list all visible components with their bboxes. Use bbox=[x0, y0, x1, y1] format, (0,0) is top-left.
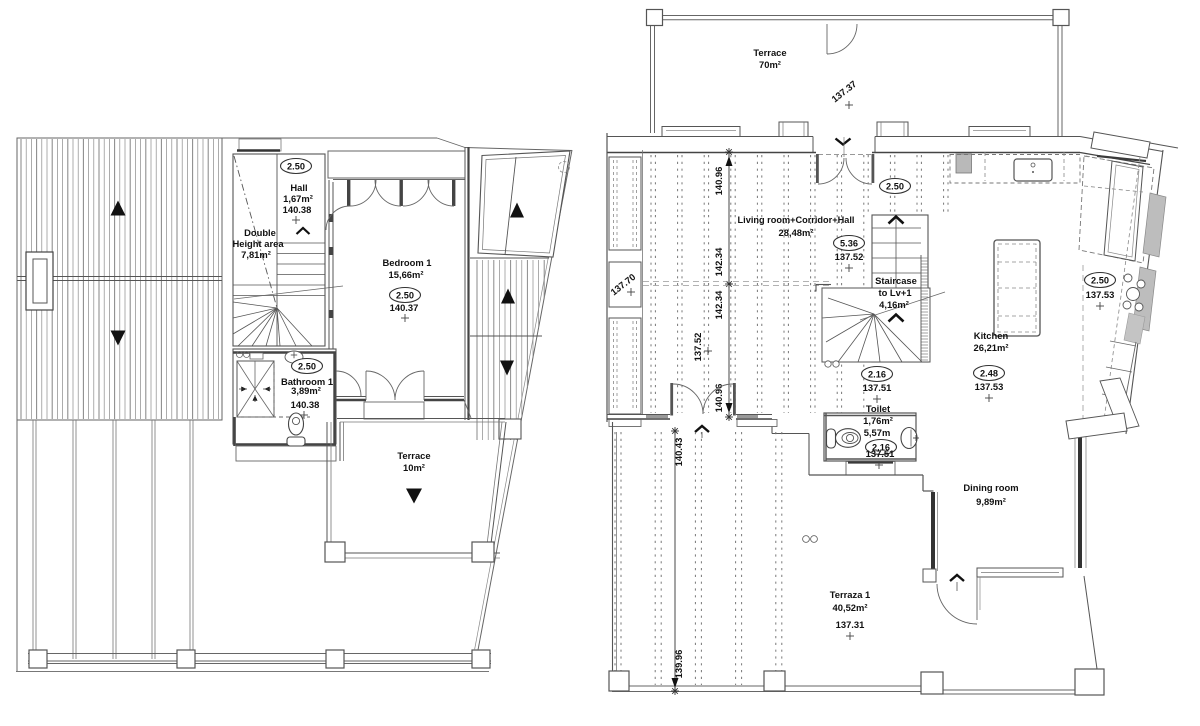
svg-text:40,52m²: 40,52m² bbox=[833, 602, 868, 613]
svg-text:15,66m²: 15,66m² bbox=[389, 269, 424, 280]
svg-text:2.50: 2.50 bbox=[886, 181, 904, 191]
svg-text:5.36: 5.36 bbox=[840, 238, 858, 248]
svg-text:9,89m²: 9,89m² bbox=[976, 496, 1006, 507]
svg-text:Dining room: Dining room bbox=[963, 482, 1018, 493]
svg-text:142.34: 142.34 bbox=[713, 290, 724, 319]
svg-text:Hall: Hall bbox=[290, 182, 307, 193]
svg-text:3,89m²: 3,89m² bbox=[291, 385, 321, 396]
svg-text:2.50: 2.50 bbox=[396, 290, 414, 300]
svg-text:Kitchen: Kitchen bbox=[974, 330, 1009, 341]
svg-text:137.52: 137.52 bbox=[835, 251, 864, 262]
svg-text:137.53: 137.53 bbox=[975, 381, 1004, 392]
svg-text:7,81m²: 7,81m² bbox=[241, 249, 271, 260]
svg-text:140.38: 140.38 bbox=[283, 204, 312, 215]
svg-text:Staircase: Staircase bbox=[875, 275, 917, 286]
svg-text:1,76m²: 1,76m² bbox=[863, 415, 893, 426]
svg-text:Terrace: Terrace bbox=[397, 450, 430, 461]
svg-text:Terraza 1: Terraza 1 bbox=[830, 589, 870, 600]
svg-text:Living room+Corridor+Hall: Living room+Corridor+Hall bbox=[738, 215, 855, 225]
svg-text:140.43: 140.43 bbox=[673, 438, 684, 467]
svg-text:to Lv+1: to Lv+1 bbox=[878, 287, 911, 298]
svg-text:Bedroom 1: Bedroom 1 bbox=[383, 257, 432, 268]
svg-text:140.38: 140.38 bbox=[291, 399, 320, 410]
svg-text:142.34: 142.34 bbox=[713, 247, 724, 276]
svg-text:10m²: 10m² bbox=[403, 462, 425, 473]
svg-text:137.52: 137.52 bbox=[692, 333, 703, 362]
svg-text:2.50: 2.50 bbox=[1091, 275, 1109, 285]
svg-text:Terrace: Terrace bbox=[753, 47, 786, 58]
svg-text:139.96: 139.96 bbox=[673, 650, 684, 679]
svg-text:137.51: 137.51 bbox=[863, 382, 892, 393]
svg-text:1,67m²: 1,67m² bbox=[283, 193, 313, 204]
svg-text:Toilet: Toilet bbox=[866, 403, 890, 414]
svg-text:140.37: 140.37 bbox=[390, 302, 419, 313]
svg-text:5,57m: 5,57m bbox=[864, 427, 891, 438]
svg-text:2.48: 2.48 bbox=[980, 368, 998, 378]
svg-text:137.31: 137.31 bbox=[836, 619, 865, 630]
svg-text:70m²: 70m² bbox=[759, 59, 781, 70]
svg-text:137.53: 137.53 bbox=[1086, 289, 1115, 300]
svg-text:140.96: 140.96 bbox=[713, 167, 724, 196]
svg-text:137.51: 137.51 bbox=[866, 448, 895, 459]
svg-text:Height area: Height area bbox=[232, 238, 284, 249]
svg-text:26,21m²: 26,21m² bbox=[974, 342, 1009, 353]
svg-text:4,16m²: 4,16m² bbox=[879, 299, 909, 310]
svg-text:2.50: 2.50 bbox=[298, 361, 316, 371]
svg-text:2.16: 2.16 bbox=[868, 369, 886, 379]
svg-text:28,48m²: 28,48m² bbox=[779, 227, 814, 238]
svg-text:Double: Double bbox=[244, 227, 276, 238]
svg-text:2.50: 2.50 bbox=[287, 161, 305, 171]
